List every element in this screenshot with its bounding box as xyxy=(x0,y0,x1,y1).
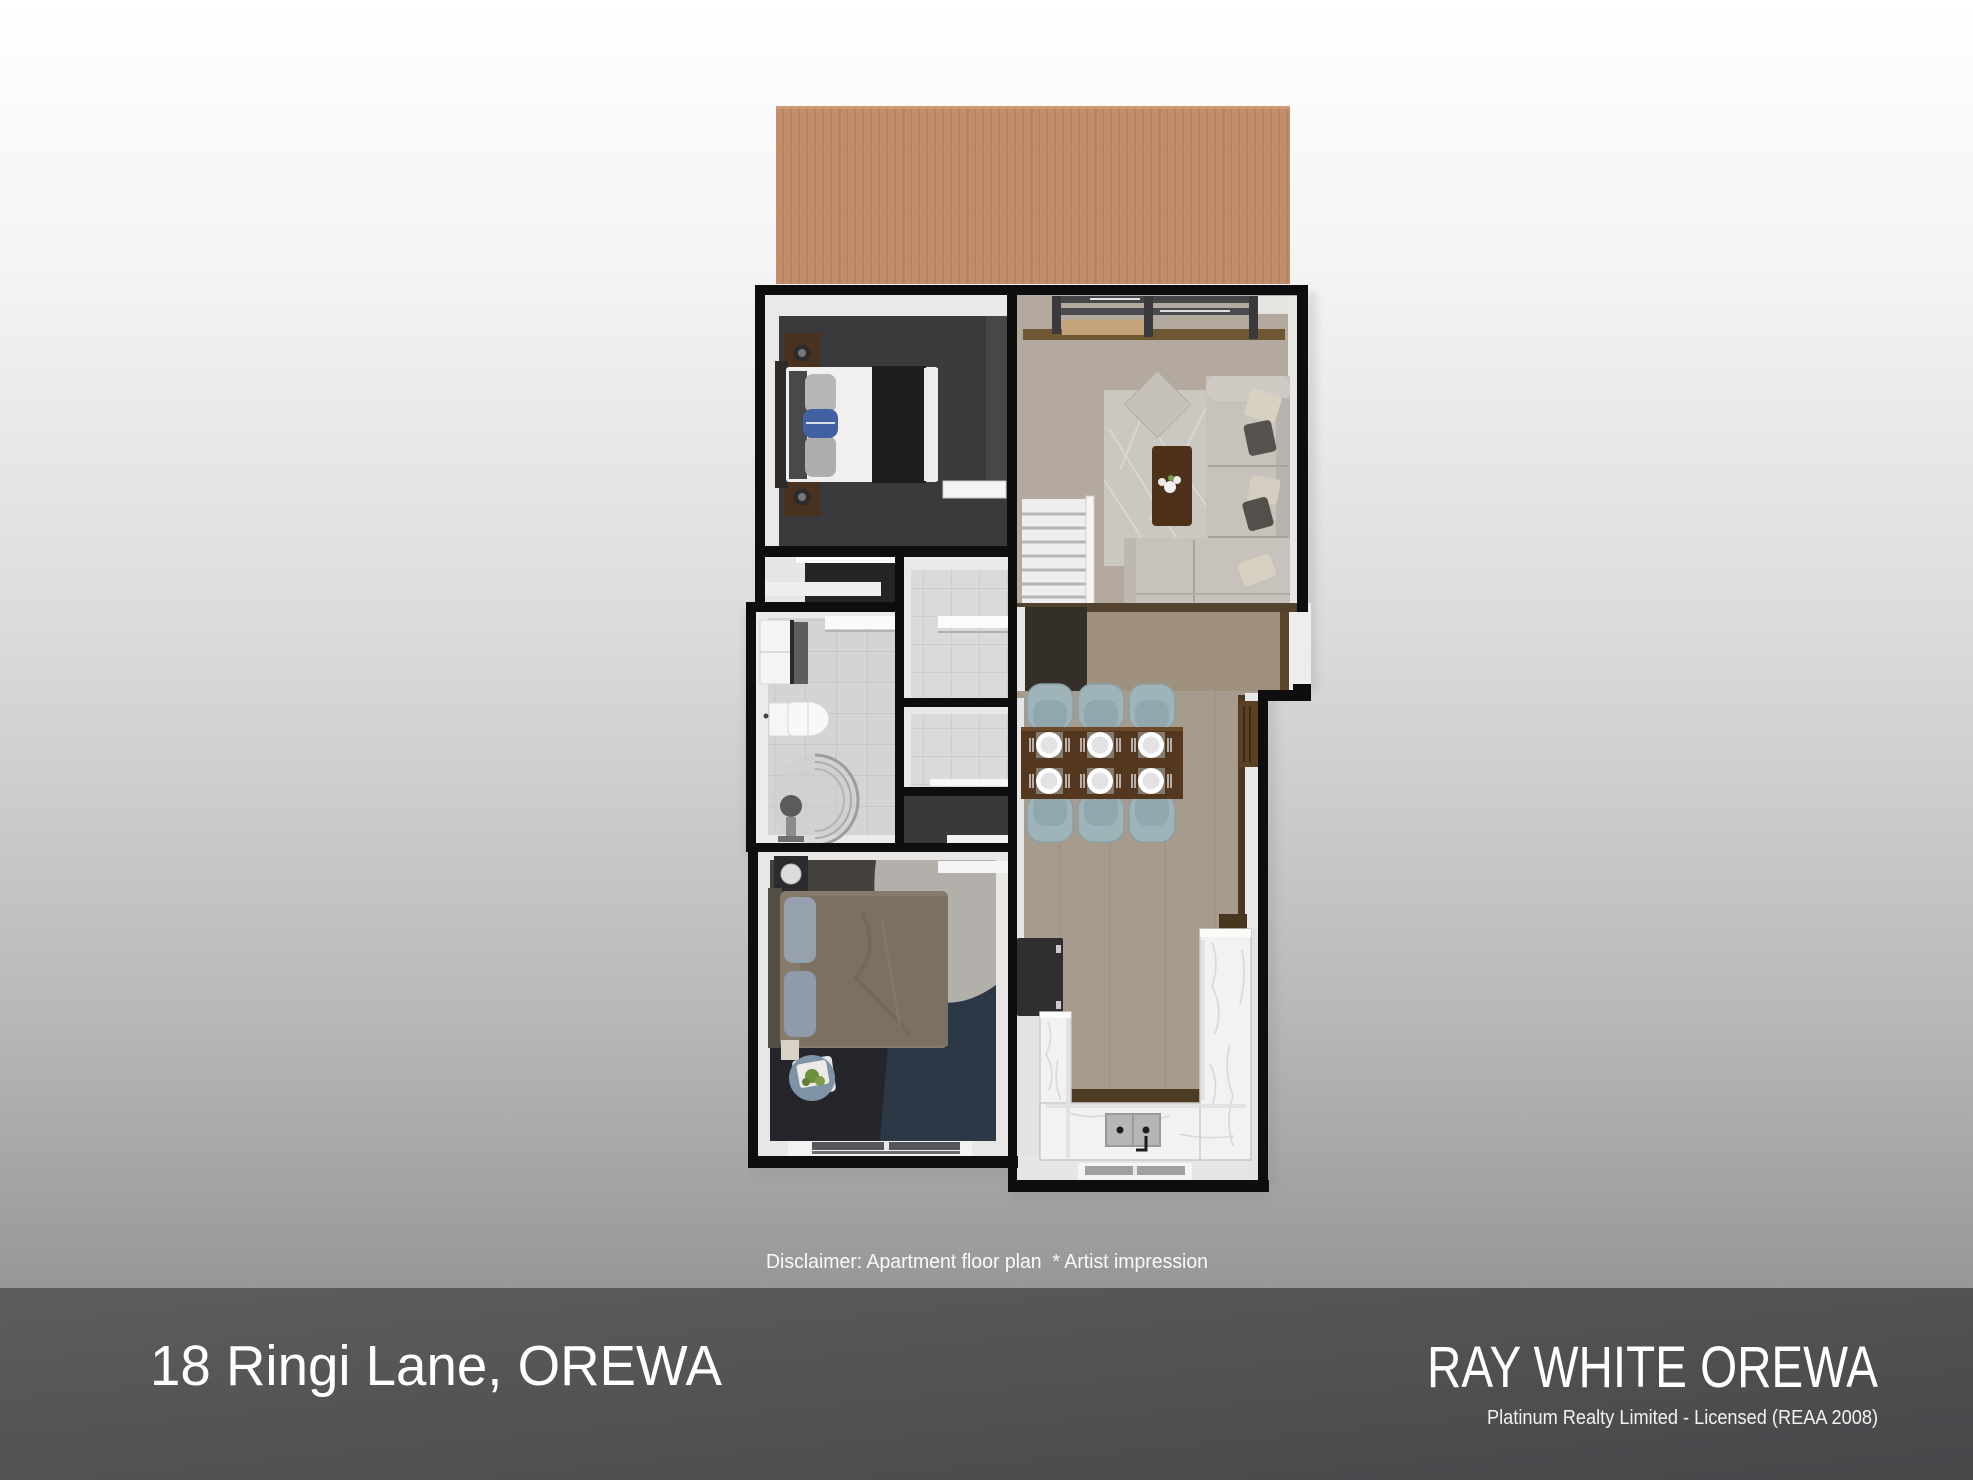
svg-text:Platinum Realty Limited - Lice: Platinum Realty Limited - Licensed (REAA… xyxy=(1487,1406,1878,1429)
svg-text:RAY WHITE OREWA: RAY WHITE OREWA xyxy=(1427,1335,1878,1400)
svg-text:Disclaimer: Apartment floor pl: Disclaimer: Apartment floor plan * Artis… xyxy=(766,1250,1208,1273)
svg-text:18 Ringi Lane, OREWA: 18 Ringi Lane, OREWA xyxy=(150,1334,722,1398)
